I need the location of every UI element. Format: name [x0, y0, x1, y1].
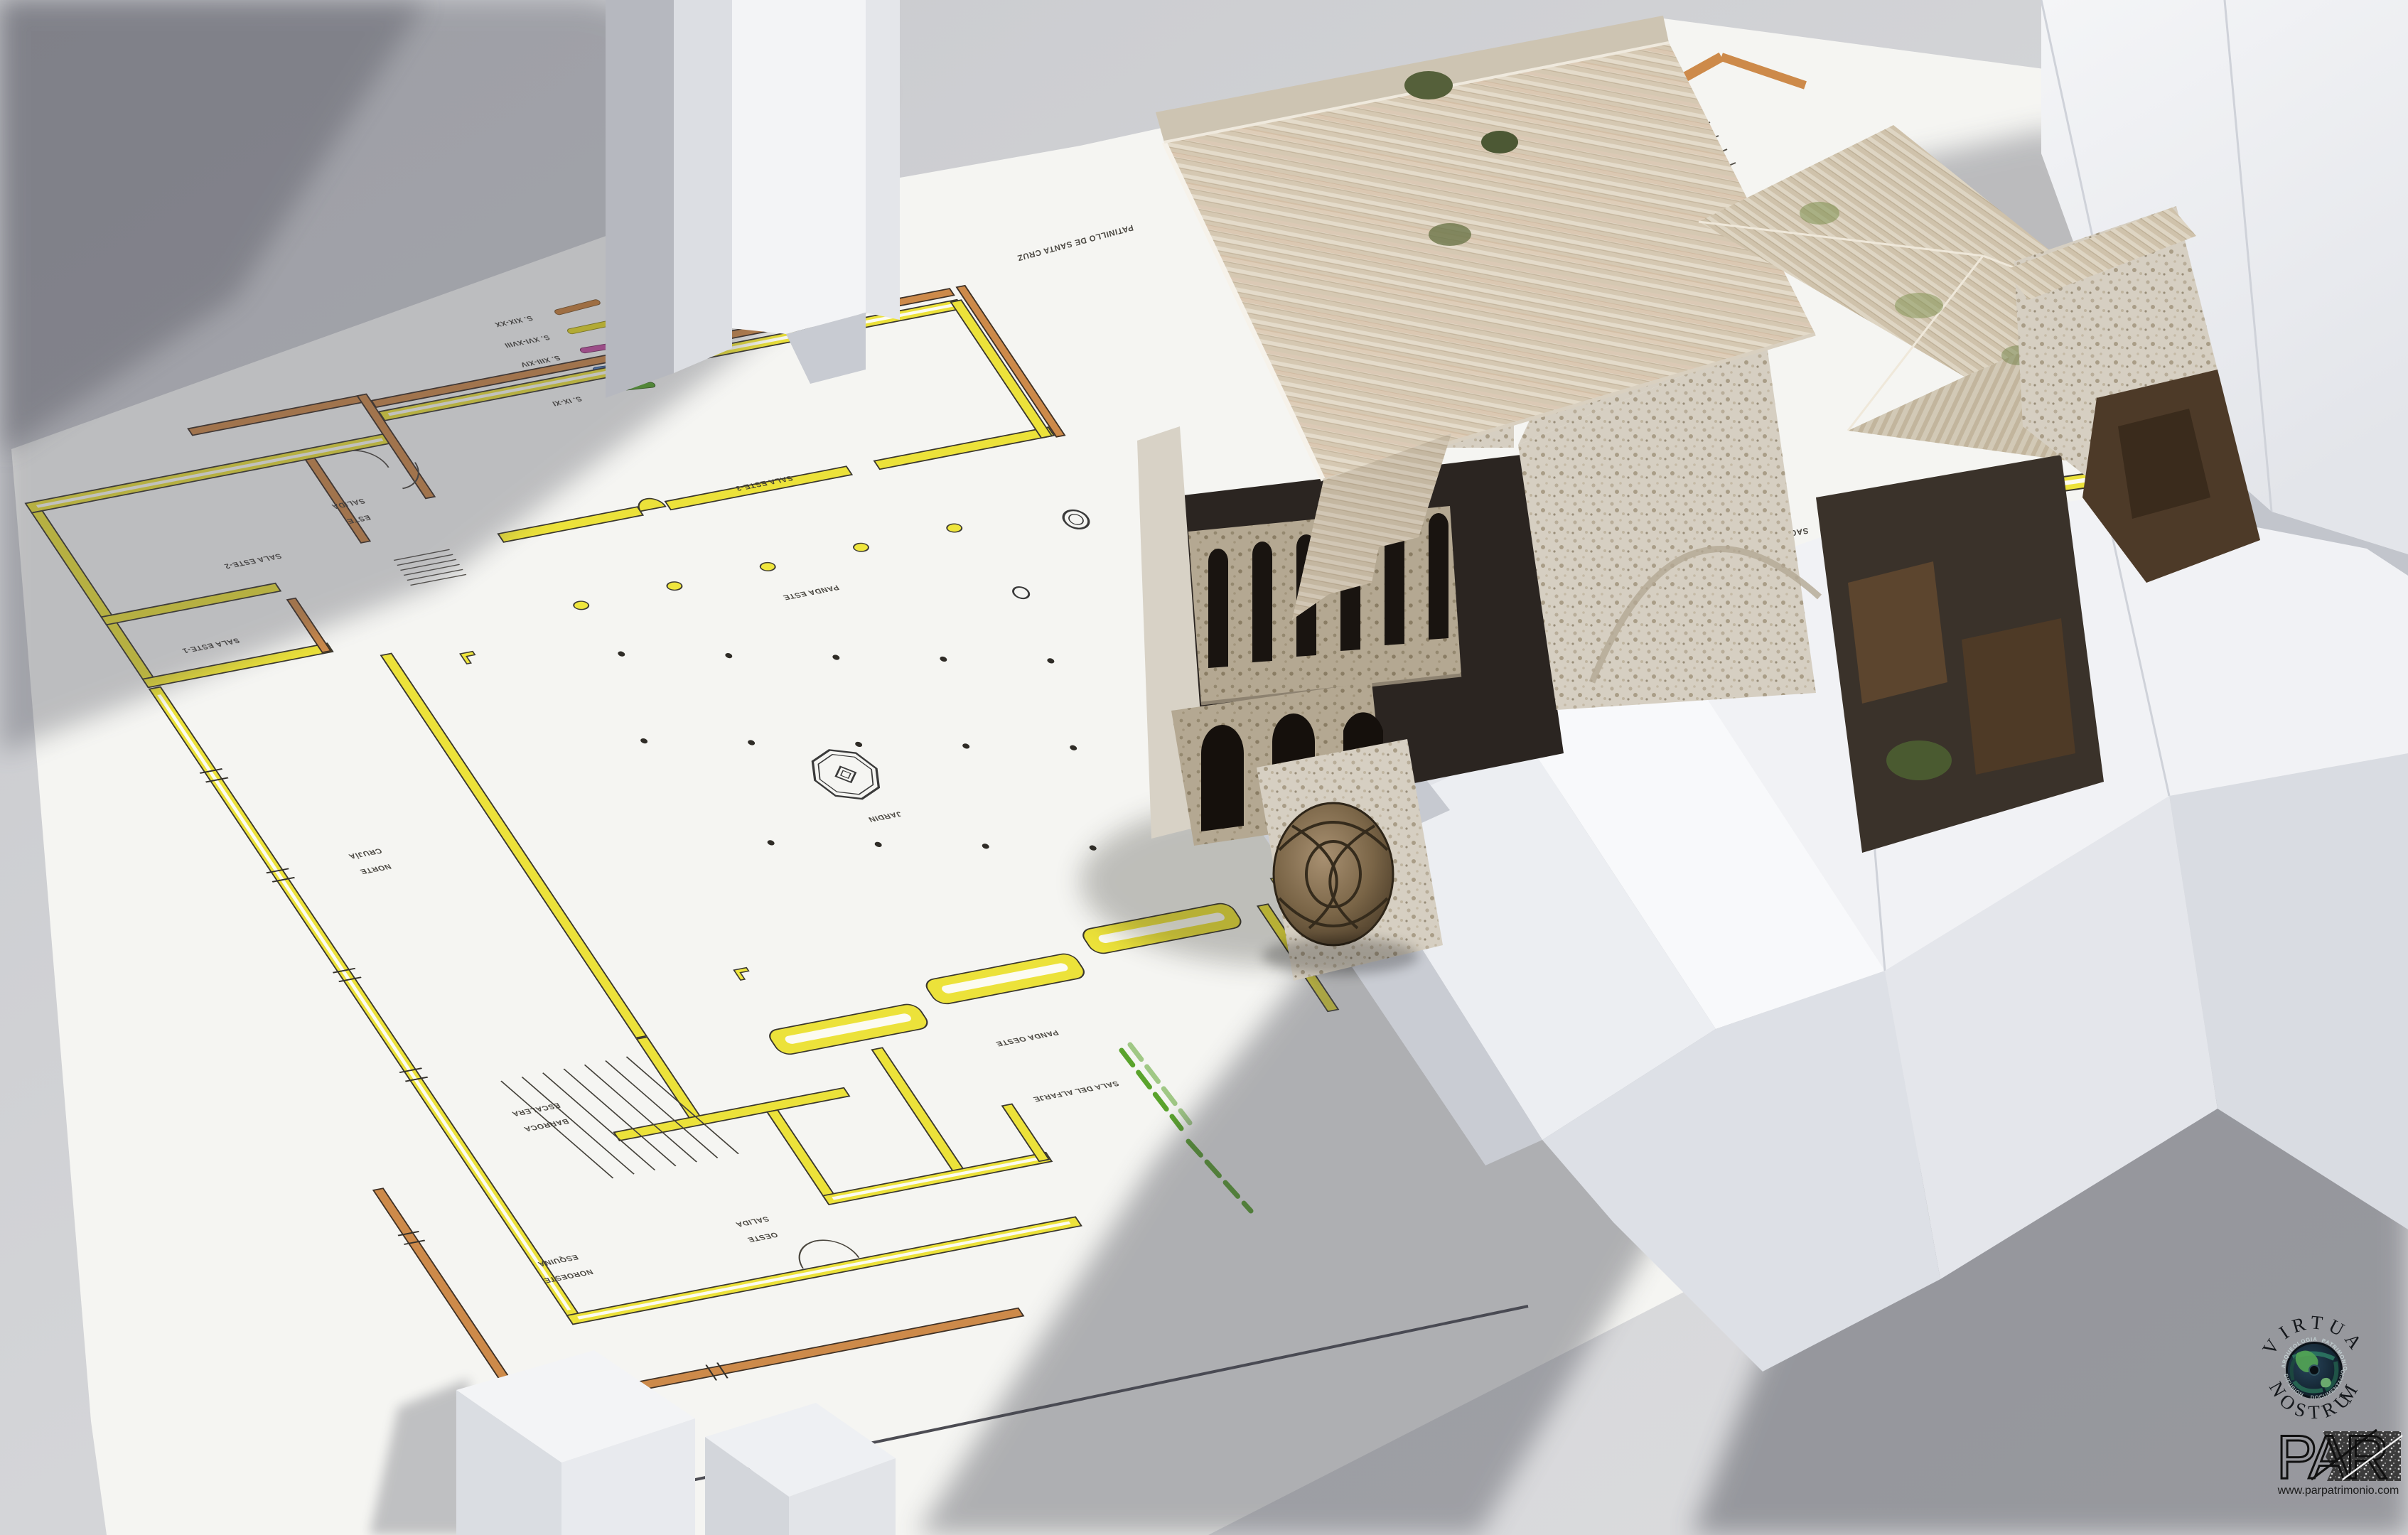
tree-canopy	[1481, 131, 1518, 153]
render-viewport[interactable]: S. XIX-XX S. XVI-XVIII S. XIII-XIV S. XI…	[0, 0, 2408, 1535]
scene-3d[interactable]: S. XIX-XX S. XVI-XVIII S. XIII-XIV S. XI…	[0, 0, 2408, 1535]
par-logo: PAR www.parpatrimonio.com	[2277, 1423, 2402, 1497]
par-url: www.parpatrimonio.com	[2277, 1485, 2399, 1497]
globe-aperture	[2309, 1365, 2319, 1375]
tree-canopy	[1404, 71, 1453, 99]
